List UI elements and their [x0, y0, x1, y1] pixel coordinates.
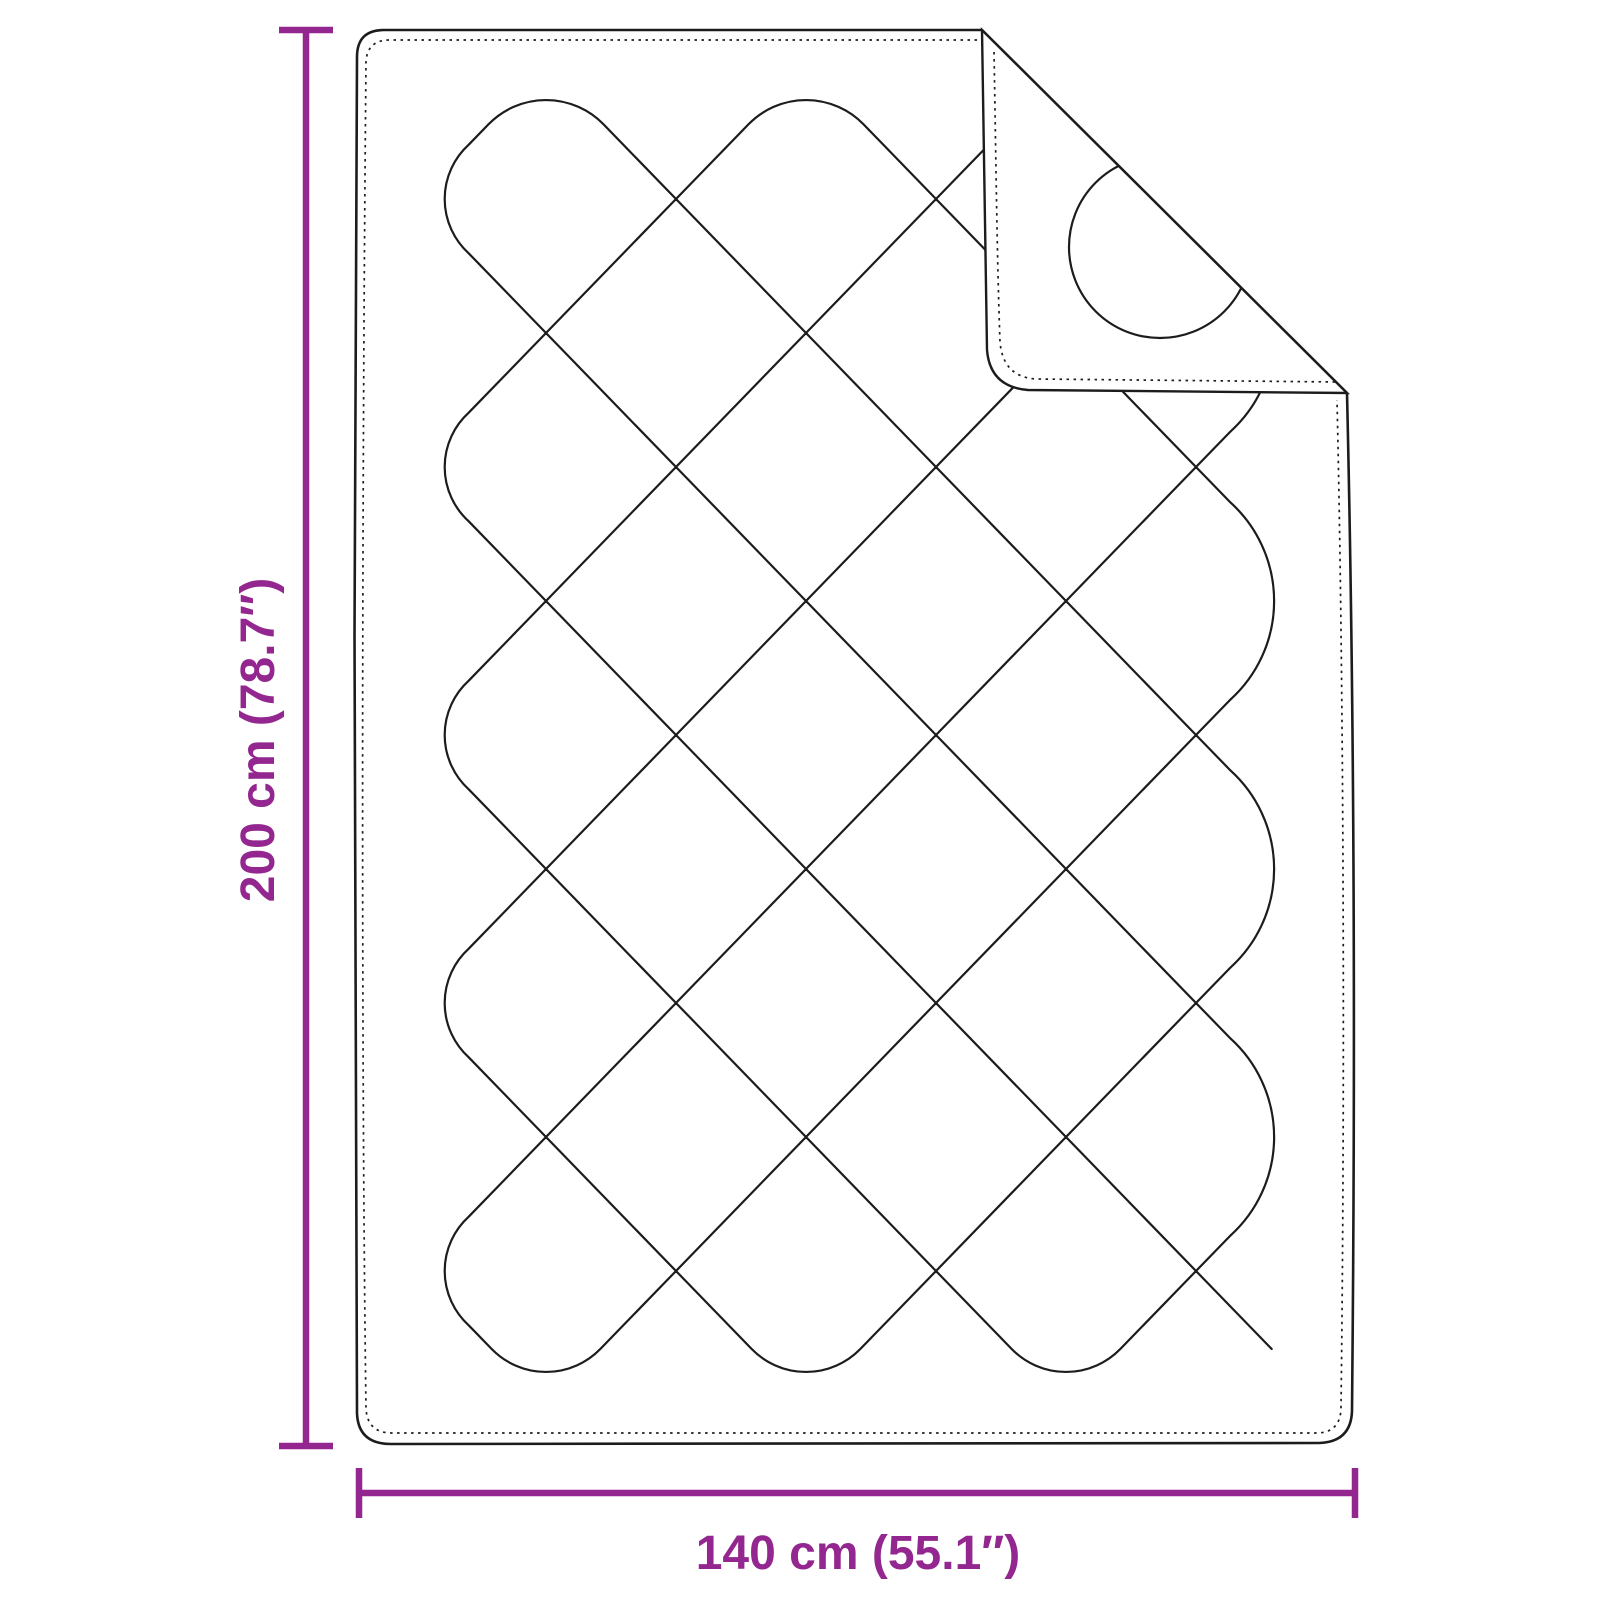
blanket-outline — [354, 30, 1353, 1444]
product-dimension-diagram: 200 cm (78.7″) 140 cm (55.1″) — [0, 0, 1600, 1600]
width-label: 140 cm (55.1″) — [696, 1527, 1021, 1580]
height-label: 200 cm (78.7″) — [232, 578, 285, 903]
diagram-canvas: 200 cm (78.7″) 140 cm (55.1″) — [0, 0, 1600, 1600]
height-dimension: 200 cm (78.7″) — [232, 28, 333, 1448]
folded-corner — [982, 30, 1347, 393]
width-dimension: 140 cm (55.1″) — [357, 1468, 1357, 1580]
